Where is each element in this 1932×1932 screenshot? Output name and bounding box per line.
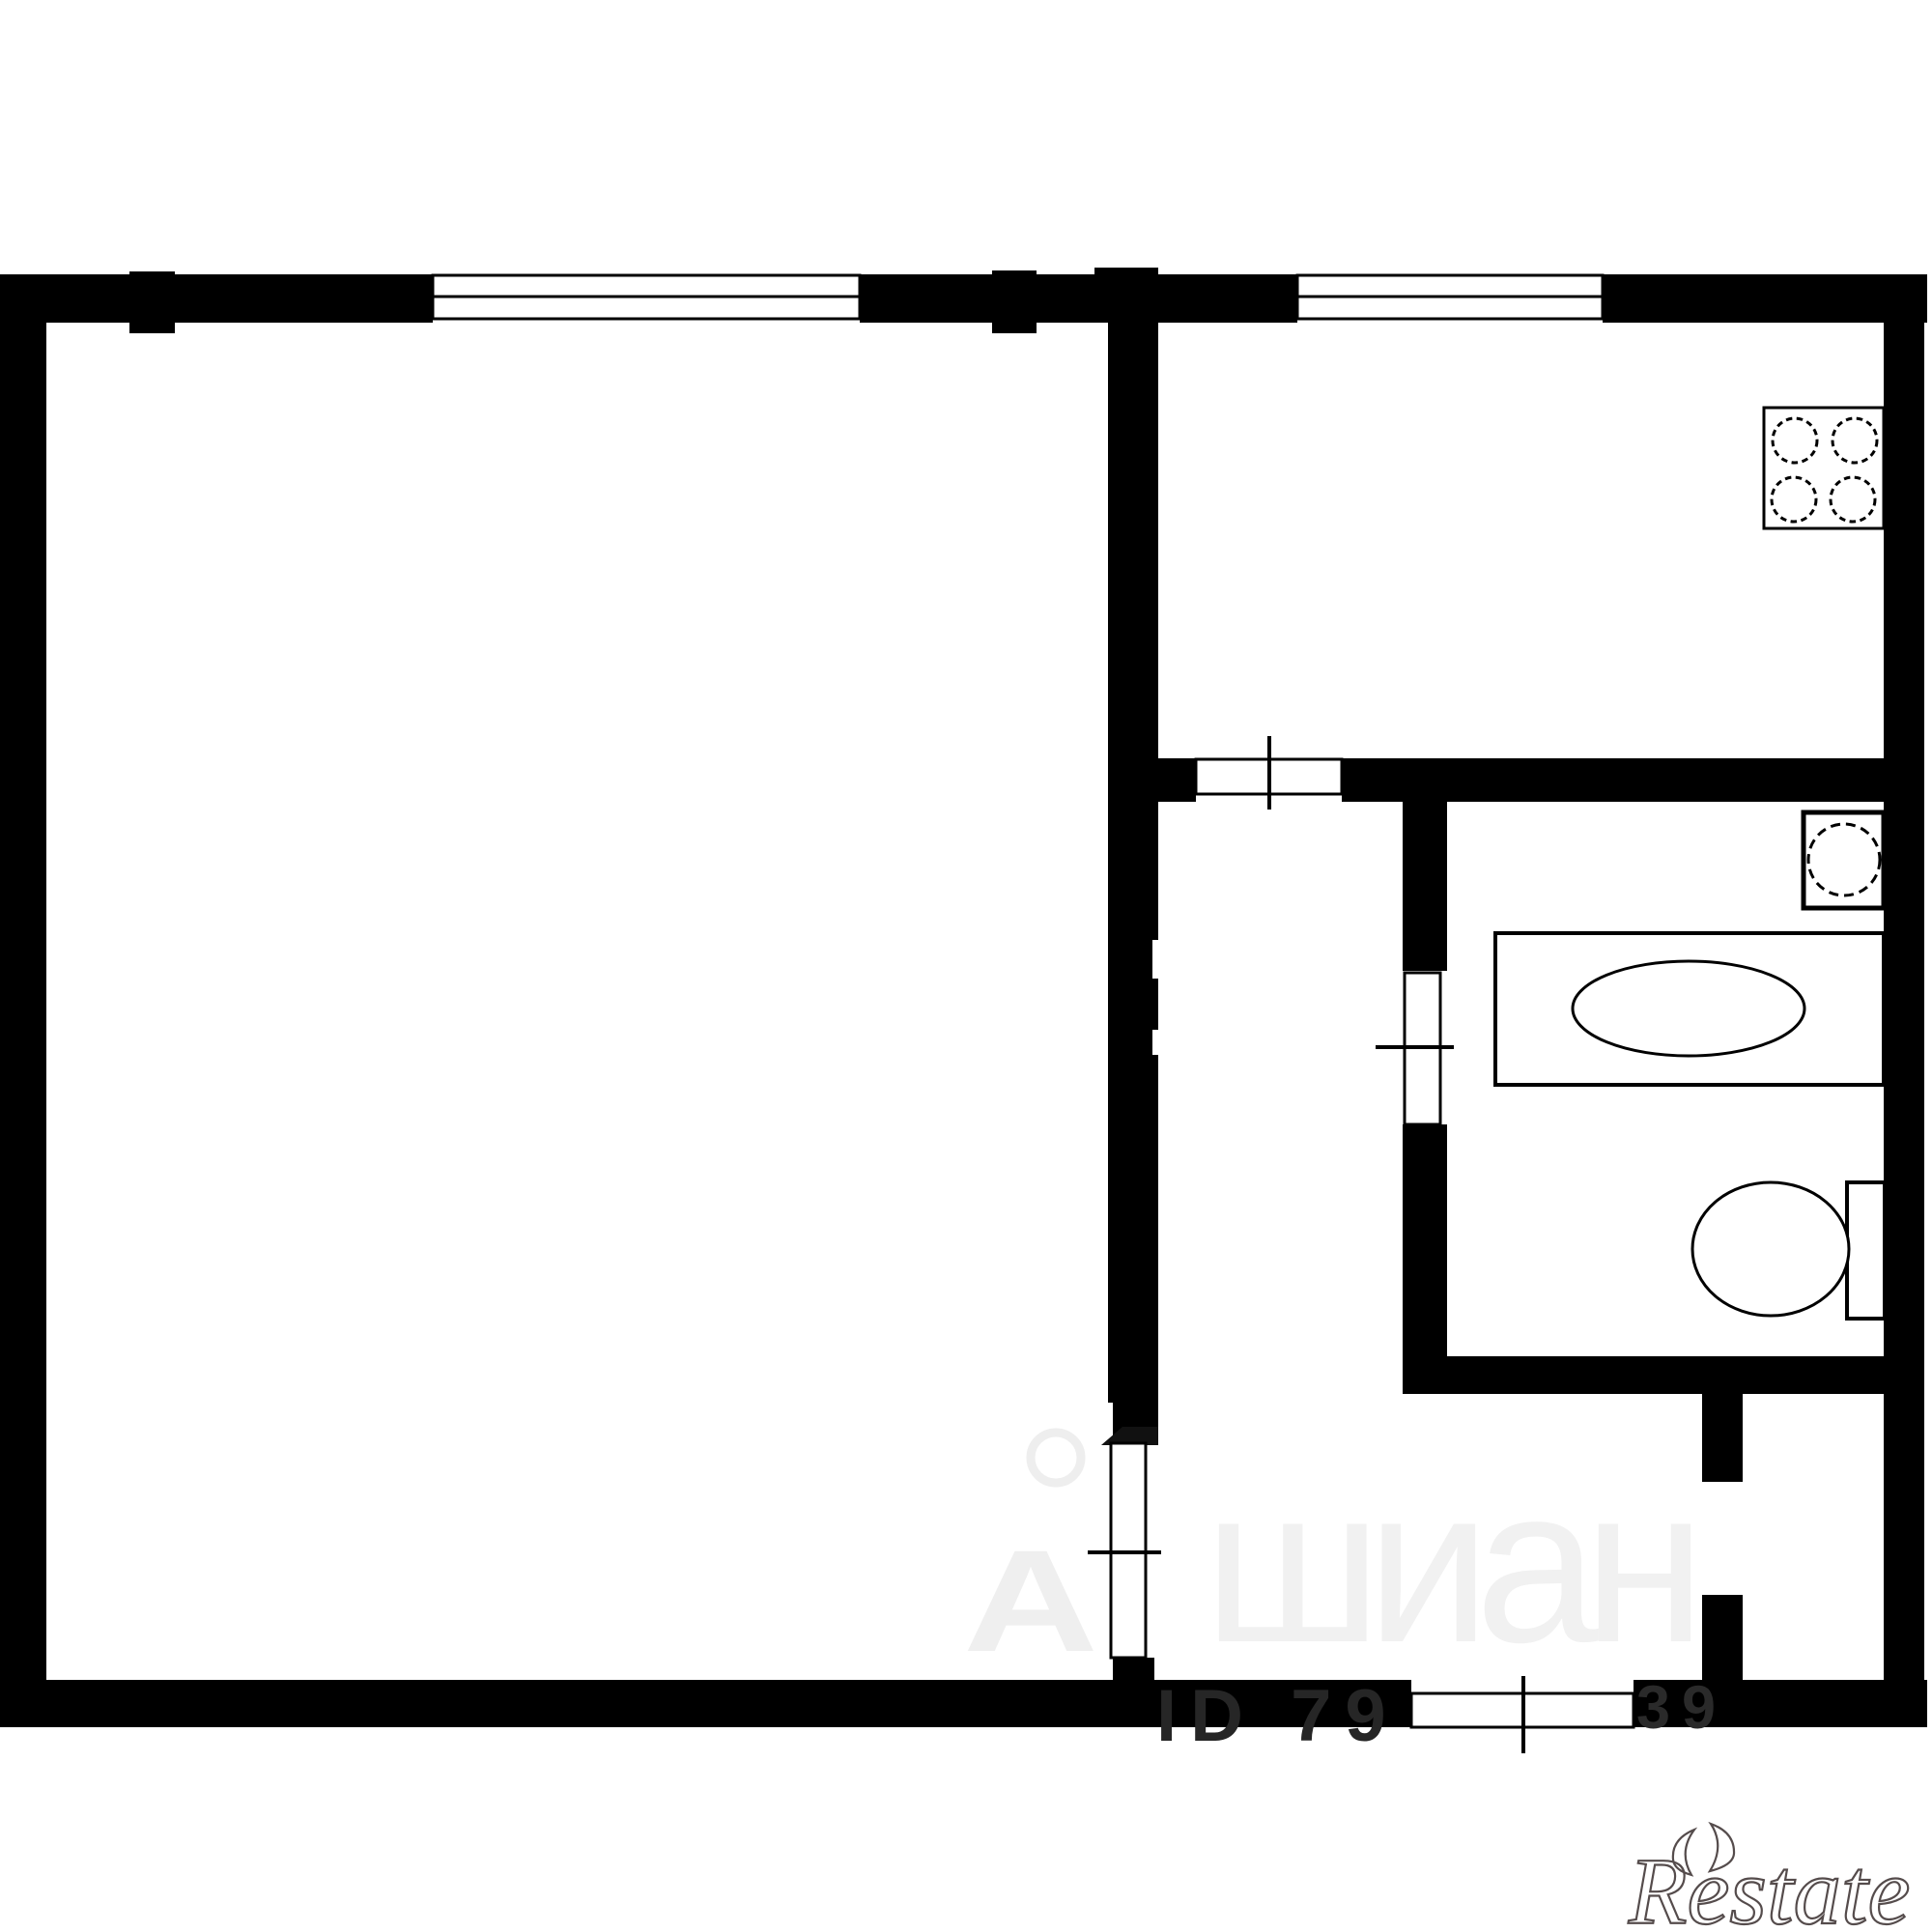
svg-text:ID 79: ID 79 bbox=[1156, 1675, 1400, 1757]
svg-text:шиан: шиан bbox=[1204, 1440, 1691, 1689]
svg-text:39: 39 bbox=[1636, 1674, 1727, 1742]
svg-text:Restate: Restate bbox=[1628, 1839, 1910, 1932]
svg-text:А: А bbox=[963, 1520, 1098, 1682]
